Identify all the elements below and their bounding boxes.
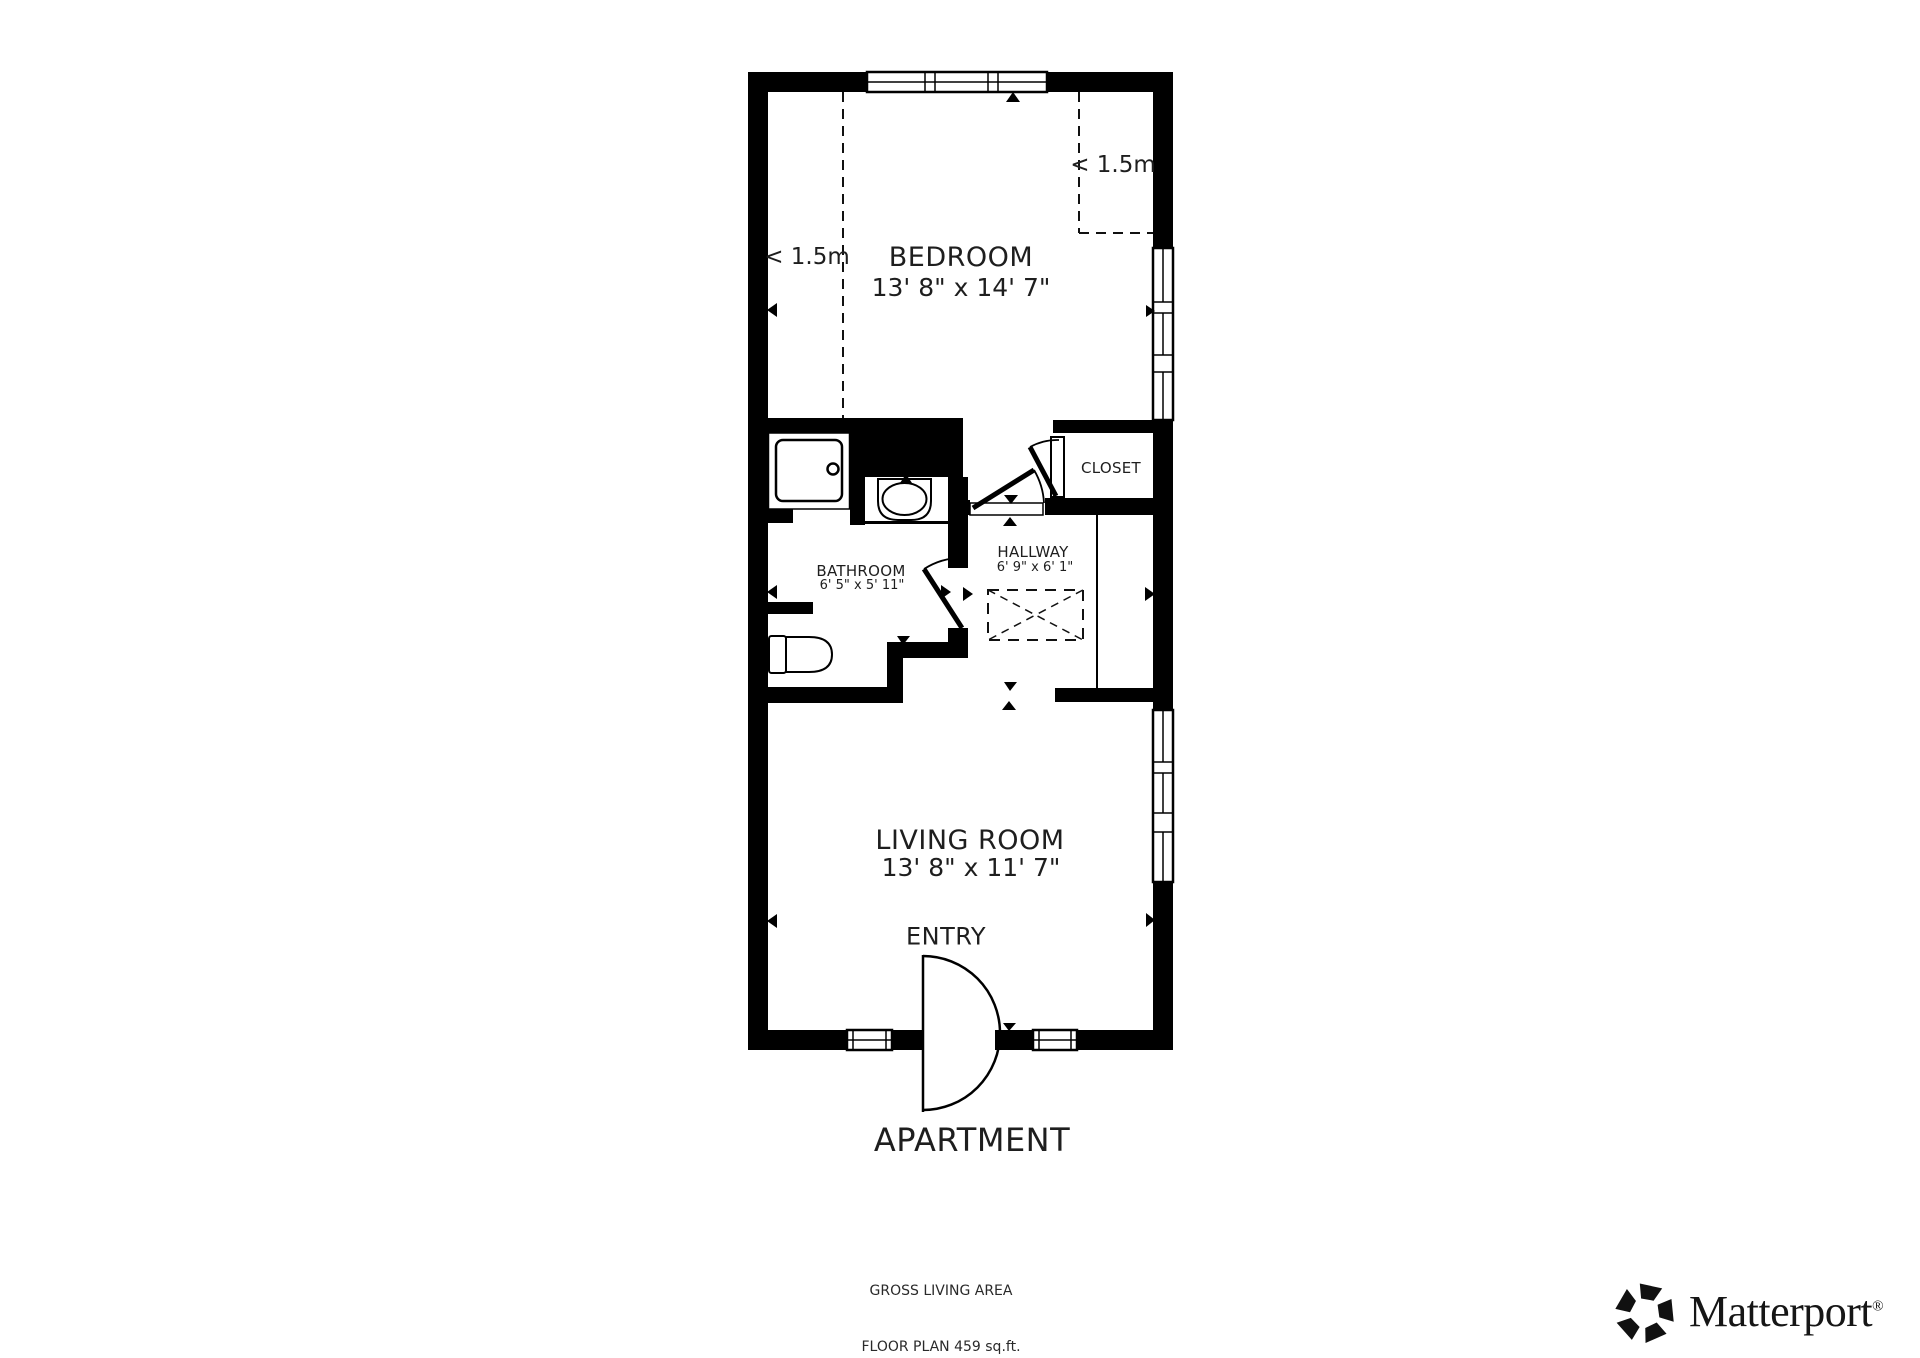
arrow-down-icon	[1003, 1023, 1016, 1031]
wall-segment	[850, 418, 963, 477]
hallway-label: HALLWAY	[997, 545, 1068, 561]
wall-segment	[1153, 72, 1173, 248]
area-summary: GROSS LIVING AREA FLOOR PLAN 459 sq.ft. …	[727, 1245, 1155, 1358]
wall-segment	[1153, 420, 1173, 710]
door-leaf	[924, 569, 962, 628]
arrow-right-icon	[941, 585, 951, 599]
wall-segment	[887, 642, 963, 658]
living-room-label: LIVING ROOM	[875, 827, 1064, 855]
matterport-logo: Matterport®	[1616, 1281, 1883, 1343]
door-bedroom	[970, 470, 1044, 515]
walls	[748, 72, 1173, 1050]
reduced-headroom-label-left: < 1.5m	[764, 245, 850, 269]
hallway-divider-line	[1096, 515, 1098, 688]
arrow-left-icon	[767, 585, 777, 599]
arrow-up-icon	[1002, 701, 1016, 710]
wall-segment	[963, 500, 970, 515]
bathroom-dimensions: 6' 5" x 5' 11"	[820, 579, 905, 593]
wall-segment	[1053, 420, 1153, 433]
bedroom-dimensions: 13' 8" x 14' 7"	[872, 275, 1051, 301]
wall-segment	[768, 508, 793, 523]
wall-segment	[1077, 1030, 1173, 1050]
entry-label: ENTRY	[906, 924, 986, 949]
wall-segment	[768, 687, 903, 703]
toilet-tank	[769, 636, 786, 673]
window-bedroom-right	[1153, 248, 1173, 420]
floorplan-title: APARTMENT	[874, 1124, 1070, 1158]
registered-mark: ®	[1872, 1298, 1883, 1314]
door-swing-arc	[923, 956, 1000, 1110]
toilet	[769, 636, 832, 673]
wall-segment	[948, 477, 968, 568]
shower-drain	[828, 464, 839, 475]
door-entry	[923, 955, 1000, 1112]
wall-segment	[892, 1030, 923, 1050]
doors	[923, 437, 1064, 1112]
wall-segment	[887, 658, 903, 703]
wall-segment	[748, 1030, 847, 1050]
hallway-dimensions: 6' 9" x 6' 1"	[997, 561, 1073, 575]
bedroom-label: BEDROOM	[889, 244, 1033, 272]
arrow-right-icon	[963, 587, 973, 601]
living-room-dimensions: 13' 8" x 11' 7"	[882, 855, 1061, 881]
gross-living-area-line: GROSS LIVING AREA	[727, 1282, 1155, 1301]
window-bedroom-top	[867, 72, 1047, 92]
window-living-right	[1153, 710, 1173, 882]
window-living-bottom-right	[1033, 1030, 1077, 1050]
floorplan-page: < 1.5m < 1.5m BEDROOM 13' 8" x 14' 7" CL…	[0, 0, 1920, 1358]
toilet-bowl	[786, 637, 832, 672]
sink-counter-edge	[865, 521, 948, 524]
door-closet	[1030, 437, 1064, 497]
wall-segment	[1055, 688, 1153, 702]
wall-segment	[850, 435, 865, 525]
brand-name: Matterport	[1689, 1287, 1872, 1336]
wall-segment	[768, 602, 813, 614]
wall-segment	[748, 72, 768, 1050]
wall-segment	[1153, 882, 1173, 1050]
matterport-wordmark: Matterport®	[1689, 1290, 1883, 1334]
reduced-headroom-label-right: < 1.5m	[1070, 153, 1156, 177]
arrow-left-icon	[767, 914, 777, 928]
closet-label: CLOSET	[1081, 461, 1141, 477]
arrow-down-icon	[1004, 682, 1017, 691]
floor-plan-area-line: FLOOR PLAN 459 sq.ft.	[727, 1338, 1155, 1357]
ceiling-opening-marker	[988, 590, 1083, 640]
wall-segment	[1045, 498, 1153, 515]
arrow-up-icon	[1006, 92, 1020, 102]
arrow-up-icon	[1003, 517, 1017, 526]
window-living-bottom-left	[847, 1030, 892, 1050]
bathroom-sink	[878, 479, 931, 520]
shower	[769, 433, 850, 509]
arrow-left-icon	[767, 303, 777, 317]
